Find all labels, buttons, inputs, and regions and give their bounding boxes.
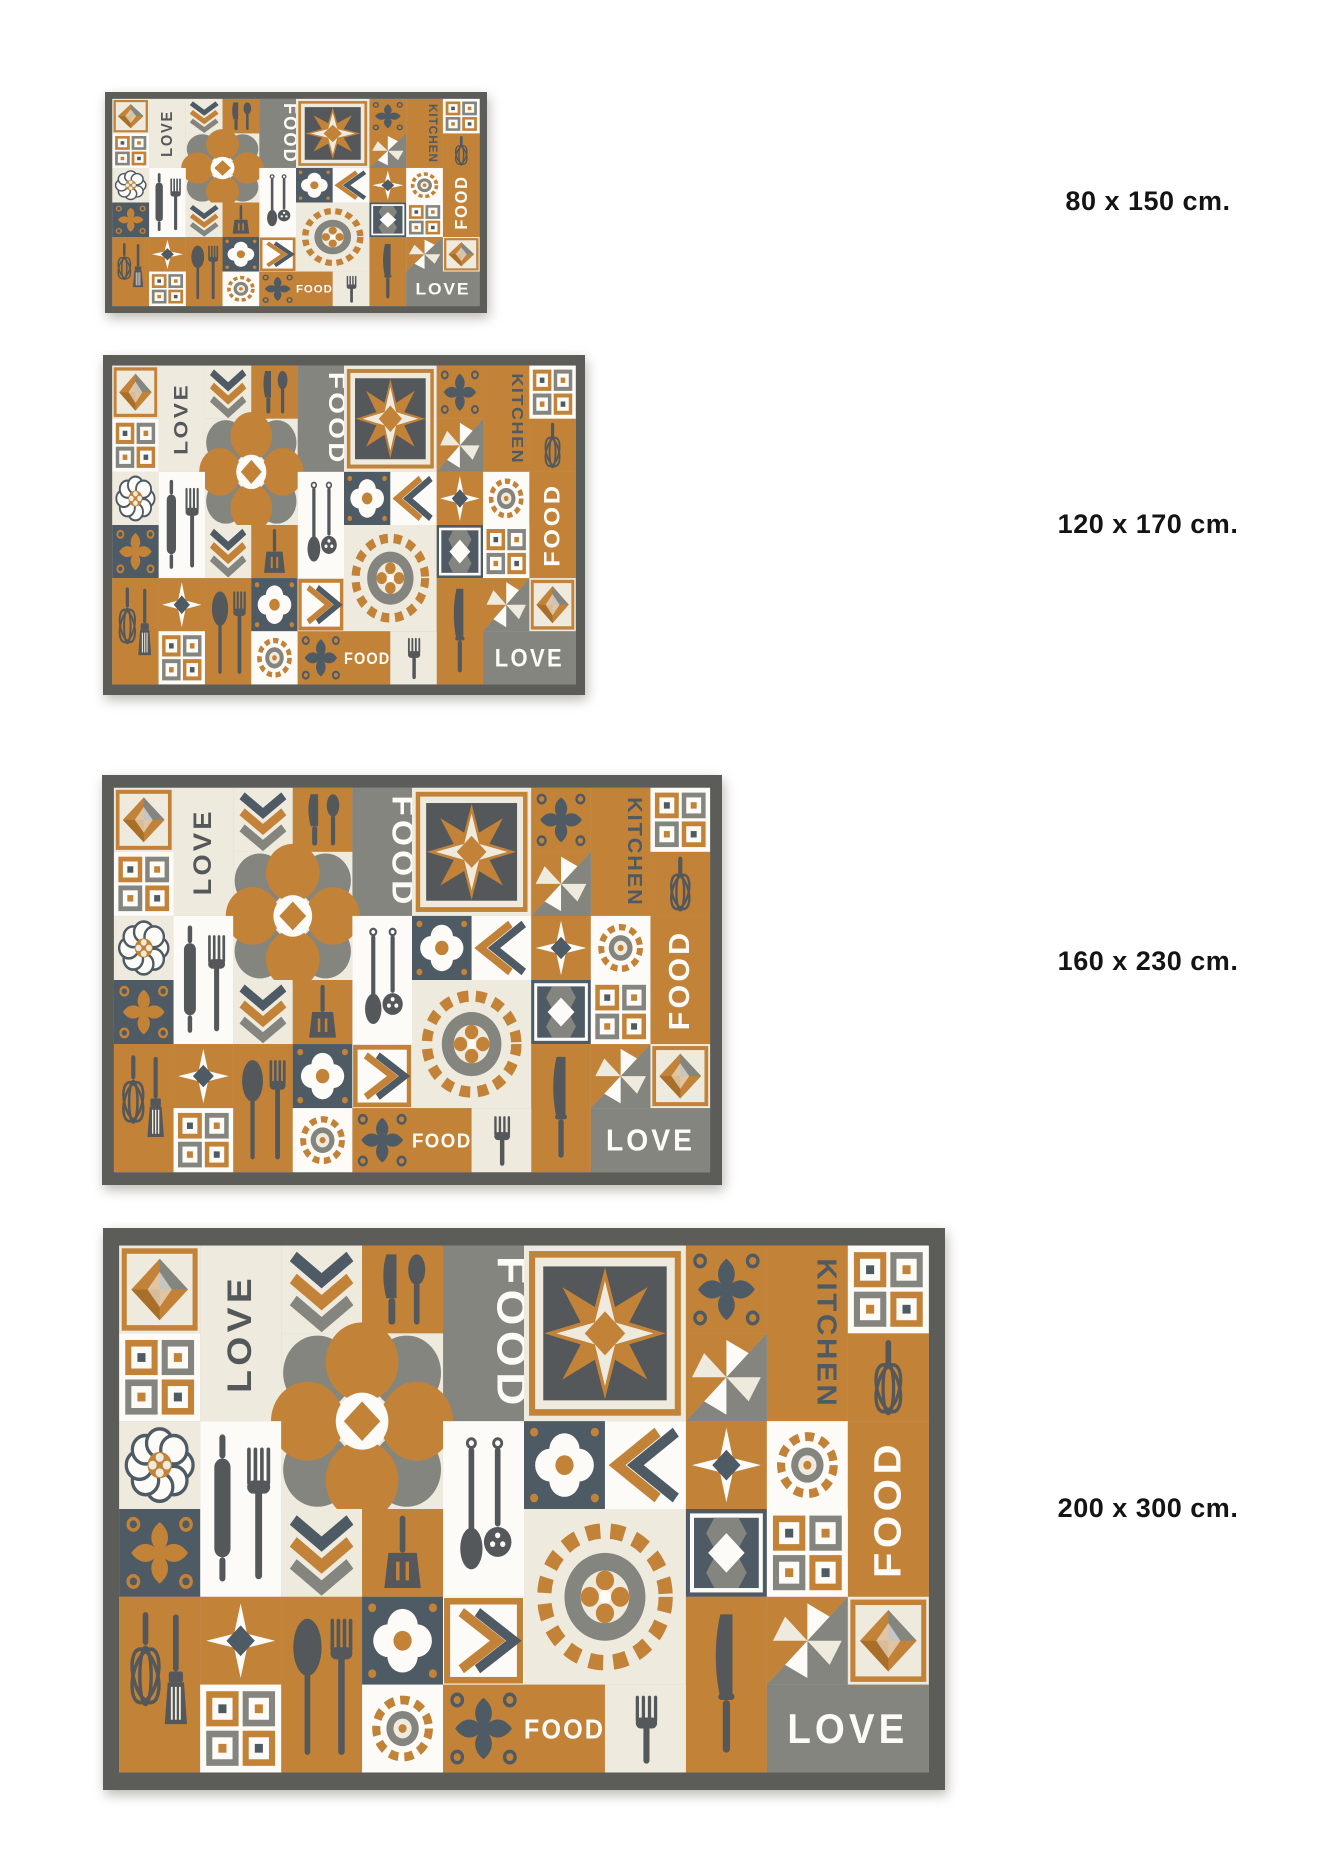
rug-pattern-image: [102, 775, 722, 1185]
size-label-200x300: 200 x 300 cm.: [1040, 1493, 1256, 1524]
size-label-80x150: 80 x 150 cm.: [1040, 186, 1256, 217]
size-label-160x230: 160 x 230 cm.: [1040, 946, 1256, 977]
product-size-chart: 80 x 150 cm. 120 x 170 cm. 160 x 230 cm.…: [0, 0, 1324, 1875]
rug-preview-200x300: [103, 1228, 945, 1790]
rug-preview-80x150: [105, 92, 487, 313]
rug-preview-160x230: [102, 775, 722, 1185]
rug-pattern-image: [103, 1228, 945, 1790]
size-label-120x170: 120 x 170 cm.: [1040, 509, 1256, 540]
rug-preview-120x170: [103, 355, 585, 695]
rug-pattern-image: [103, 355, 585, 695]
rug-pattern-image: [105, 92, 487, 313]
